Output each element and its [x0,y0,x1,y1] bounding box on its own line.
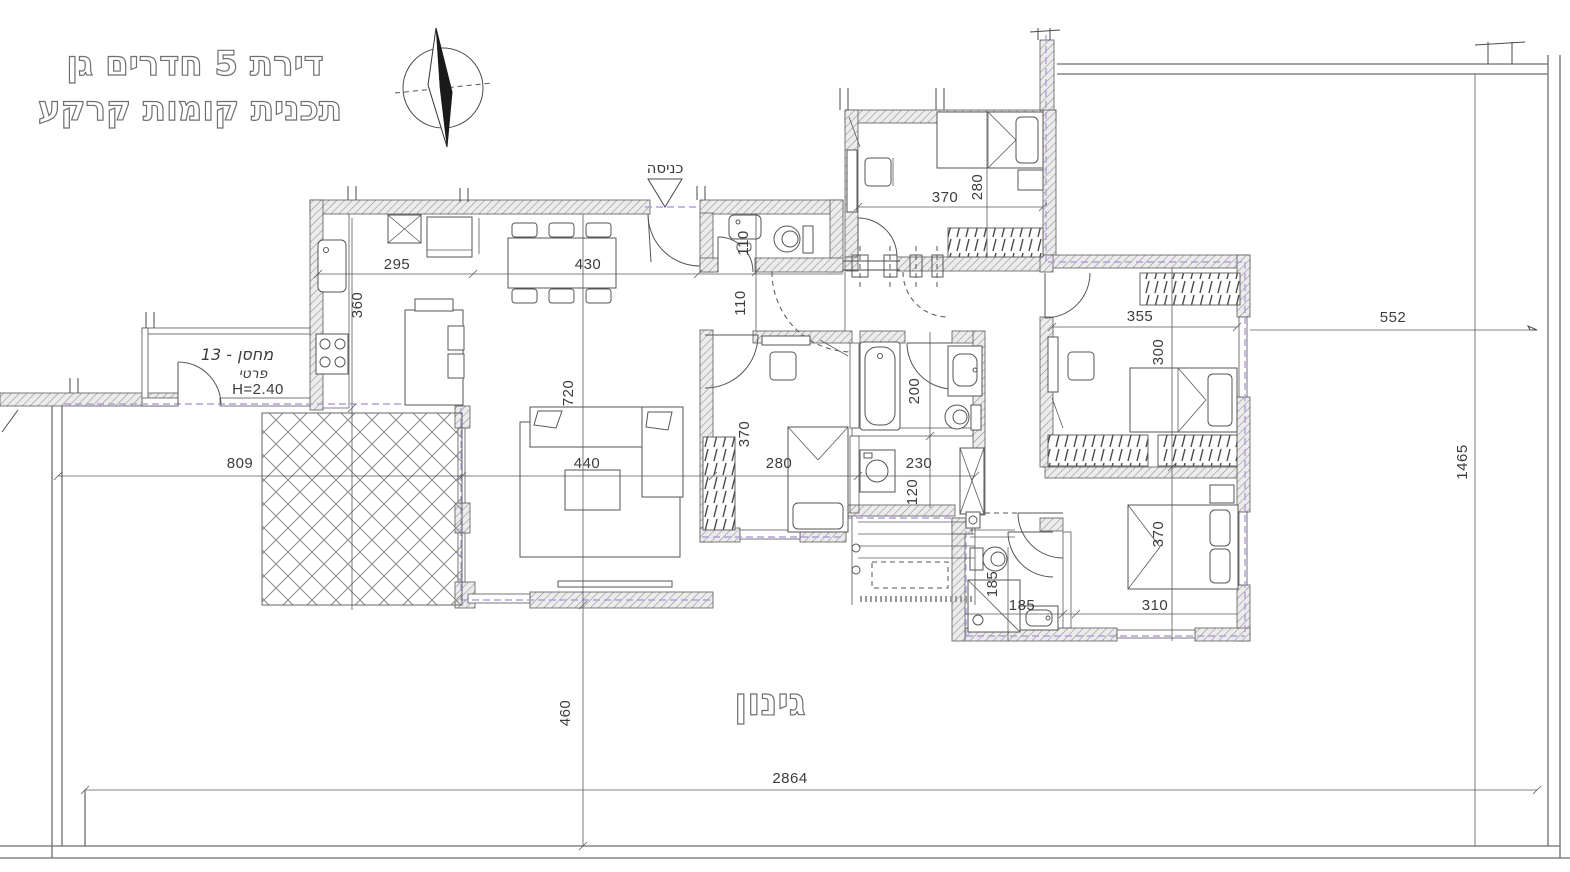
garden-label: גינון [734,680,805,724]
dim-kitchen-depth: 360 [349,292,366,319]
bedroom-2 [1048,273,1240,466]
master-bed [1128,505,1238,589]
floor-plan-page: דירת 5 חדרים גן תכנית קומות קרקע [0,0,1570,872]
bathroom-sink [948,346,982,396]
north-arrow-icon [395,28,492,147]
storage-label-line1: מחסן - 13 [201,345,275,364]
desk-chair [1068,352,1094,380]
desk [1048,337,1058,392]
dim-bedroom1-width: 370 [932,189,959,206]
bedroom-3 [703,336,848,532]
dim-bathroom2-width: 185 [1009,597,1036,614]
dim-master-width: 310 [1142,597,1169,614]
master-toilet [970,547,1007,571]
nightstand [1018,170,1043,190]
dim-bedroom3-depth: 370 [736,421,753,448]
dim-bedroom3-width: 280 [766,455,793,472]
kitchen-island [405,299,464,405]
dim-bedroom2-width: 355 [1127,308,1154,325]
dim-plot-width: 2864 [772,770,807,787]
bedroom-2-closet-right [1158,435,1237,466]
bedroom-1-closet [948,228,1043,257]
bedroom-3-wardrobe [703,437,735,530]
dim-bathroom-depth: 200 [906,378,923,405]
bedroom-1 [847,112,1043,257]
entrance-label: כניסה [647,159,684,177]
bedroom-1-bed [937,112,1043,168]
desk [847,150,857,212]
dim-bedroom1-depth: 280 [969,174,986,201]
bedroom-2-bed [1130,368,1237,432]
dim-laundry-depth: 120 [904,479,921,506]
kitchen-sink [318,240,346,292]
side-table [1210,485,1234,503]
dim-bathroom2-depth: 185 [984,571,1001,598]
dim-hall-depth: 110 [732,290,749,315]
storage-label-line2: פרטי [239,366,269,382]
stove [316,334,348,374]
floor-plan-drawing: דירת 5 חדרים גן תכנית קומות קרקע [0,0,1570,872]
entrance-triangle-icon [648,179,682,207]
title-line-1: דירת 5 חדרים גן [66,44,323,84]
oven-cabinet [427,217,479,257]
wc-toilet [774,226,813,253]
desk [762,336,810,345]
deck-crosshatch-area [262,413,462,605]
refrigerator [388,215,421,243]
living-room [520,407,683,587]
dim-laundry-width: 230 [906,455,933,472]
dim-kitchen-width: 295 [384,256,411,273]
dim-master-depth: 370 [1150,521,1167,548]
master-bedroom [1128,485,1238,589]
bedroom-2-closet-left [1048,435,1148,466]
tv-console [558,581,672,587]
dim-garden-depth: 460 [557,700,574,727]
drawing-title: דירת 5 חדרים גן תכנית קומות קרקע [38,44,342,129]
kitchen [316,214,479,408]
dim-living-width: 440 [574,455,601,472]
dim-wc-depth: 110 [735,230,752,255]
plot-boundary [0,42,1570,858]
laundry-cabinet [960,448,984,514]
bathroom-toilet [945,405,981,430]
dim-plot-depth: 1465 [1454,444,1471,479]
bedroom-2-top-closet [1140,273,1240,305]
dim-dining-width: 430 [575,256,602,273]
bedroom-3-bed [788,427,848,532]
mirror [1052,398,1063,428]
walls [0,40,1250,641]
desk-chair [770,352,796,380]
dim-living-depth: 720 [560,380,577,407]
master-bathroom [968,547,1058,632]
title-line-2: תכנית קומות קרקע [38,89,342,129]
washing-machine [860,450,895,492]
dim-east-side: 552 [1380,309,1407,326]
bathtub [860,342,900,430]
storage-label-height: H=2.40 [232,381,284,398]
dim-bedroom2-depth: 300 [1150,339,1167,366]
dim-west-side: 809 [227,455,254,472]
desk-chair [865,158,893,186]
